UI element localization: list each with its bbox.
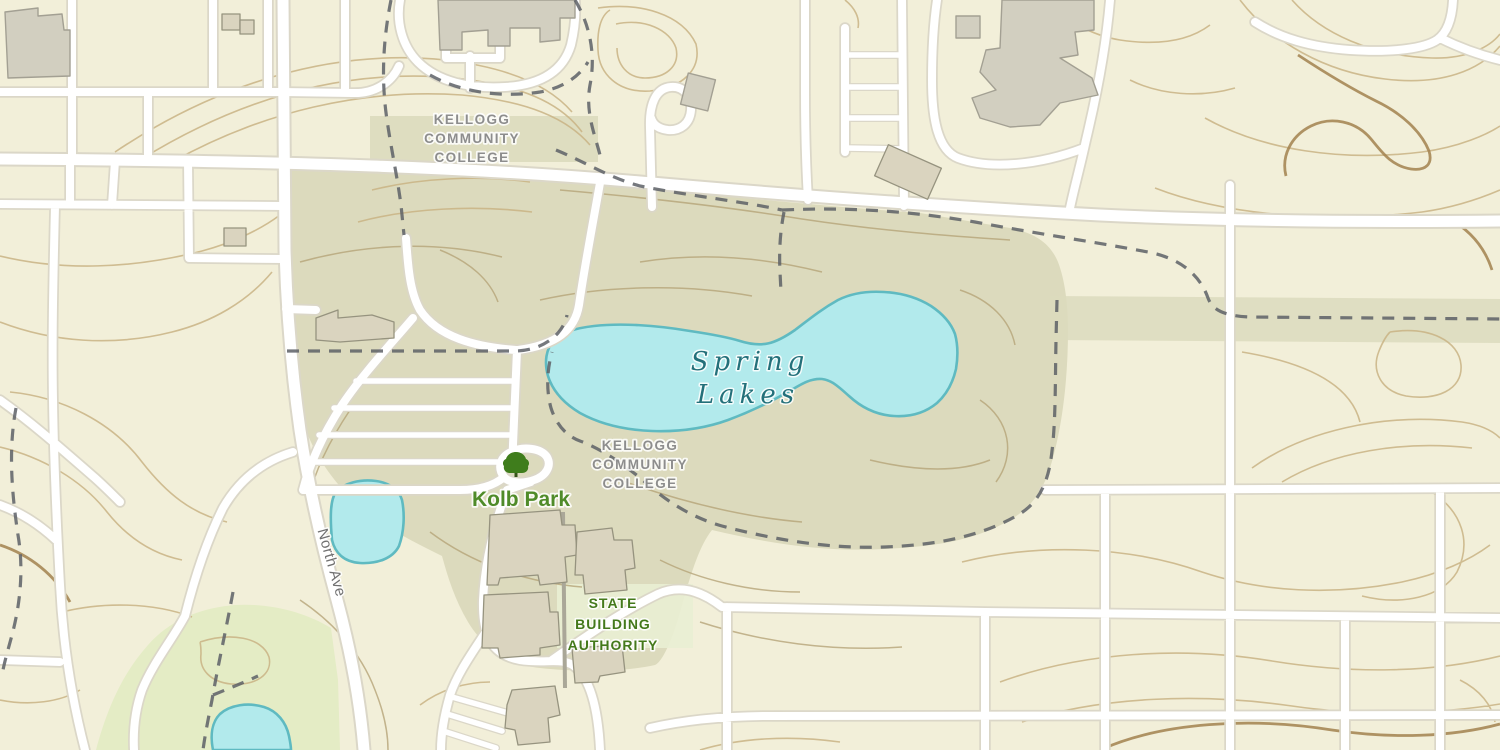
svg-text:COMMUNITY: COMMUNITY <box>592 457 688 472</box>
svg-text:COLLEGE: COLLEGE <box>434 150 509 165</box>
building <box>5 8 70 78</box>
label-kellogg-community-college-north: KELLOGG COMMUNITY COLLEGE <box>424 112 520 165</box>
svg-text:KELLOGG: KELLOGG <box>434 112 511 127</box>
svg-text:COLLEGE: COLLEGE <box>602 476 677 491</box>
building <box>956 16 980 38</box>
svg-text:KELLOGG: KELLOGG <box>602 438 679 453</box>
svg-text:BUILDING: BUILDING <box>575 616 651 632</box>
label-kellogg-community-college-south: KELLOGG COMMUNITY COLLEGE <box>592 438 688 491</box>
map-canvas[interactable]: KELLOGG COMMUNITY COLLEGE KELLOGG COMMUN… <box>0 0 1500 750</box>
building <box>222 14 240 30</box>
svg-text:Lakes: Lakes <box>696 380 799 410</box>
svg-text:Spring: Spring <box>691 347 810 377</box>
building <box>224 228 246 246</box>
svg-text:STATE: STATE <box>589 595 638 611</box>
svg-text:COMMUNITY: COMMUNITY <box>424 131 520 146</box>
label-kolb-park[interactable]: Kolb Park <box>472 488 570 511</box>
building <box>240 20 254 34</box>
svg-text:AUTHORITY: AUTHORITY <box>568 637 659 653</box>
